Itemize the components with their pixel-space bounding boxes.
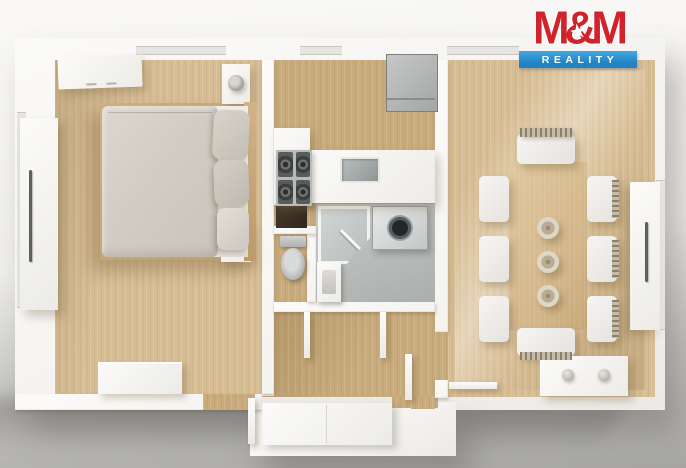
livingroom-door — [449, 382, 497, 389]
bathroom-sink — [317, 262, 341, 302]
wall-bath-bottom — [274, 302, 435, 312]
stove — [276, 150, 312, 206]
entry-door — [405, 354, 412, 400]
chair-back-slats — [612, 180, 619, 218]
chair-back-slats — [520, 352, 572, 360]
burner-icon — [296, 152, 311, 177]
pillow — [212, 109, 251, 161]
wall-wc-bath-divider — [307, 226, 316, 302]
window-livingroom-top — [447, 46, 519, 55]
sideboard-knob — [562, 369, 574, 381]
plate — [537, 217, 559, 239]
burner-icon — [296, 180, 311, 205]
wall-hall-livingroom-lower — [435, 380, 448, 398]
brand-logo: M&M ★ REALITY — [519, 8, 637, 68]
burner-icon — [278, 152, 293, 177]
lamp-icon — [228, 75, 244, 91]
wardrobe-right-handle — [645, 222, 648, 282]
chair-back-slats — [520, 128, 572, 137]
window-kitchen-top — [300, 46, 342, 55]
fridge-divider — [387, 98, 435, 100]
plate — [537, 285, 559, 307]
washing-machine — [372, 206, 428, 250]
entry-cabinet — [262, 403, 392, 445]
bathroom-sink-basin — [322, 270, 336, 294]
plate — [537, 251, 559, 273]
bedroom-door — [248, 398, 255, 444]
nightstand-top — [222, 64, 250, 104]
window-bedroom-top — [136, 46, 226, 55]
burner-icon — [278, 180, 293, 205]
shelf-handle-icon — [106, 82, 116, 84]
washer-door-icon — [387, 215, 413, 241]
kitchen-niche — [276, 203, 307, 228]
toilet-tank — [280, 236, 306, 247]
pillow-bolster — [217, 208, 249, 250]
bedroom-dresser — [98, 362, 182, 394]
sideboard — [540, 356, 628, 396]
bathroom-door — [380, 312, 386, 358]
doorway-livingroom — [435, 332, 448, 380]
sideboard-knob — [598, 369, 610, 381]
toilet-bowl — [281, 248, 305, 280]
dining-chair-left — [479, 236, 509, 282]
bedroom-shelf-topleft — [57, 55, 142, 90]
chair-back-slats — [612, 300, 619, 338]
brand-logo-title: M&M ★ — [533, 7, 623, 51]
wall-bedroom-hall — [262, 60, 274, 394]
dining-chair-left — [479, 176, 509, 222]
dining-chair-head-top — [517, 134, 575, 164]
shelf-handle-icon — [86, 83, 96, 85]
dining-chair-left — [479, 296, 509, 342]
pillow — [213, 159, 250, 206]
wardrobe-left — [20, 118, 58, 310]
bed-duvet — [102, 106, 218, 257]
fridge — [386, 54, 438, 112]
kitchen-sink — [340, 157, 380, 183]
wc-door — [304, 312, 310, 358]
wardrobe-left-handle — [29, 170, 32, 262]
bed-duvet-fold — [108, 112, 212, 113]
doorway-entry — [411, 396, 435, 409]
chair-back-slats — [612, 240, 619, 278]
floorplan-render: M&M ★ REALITY — [0, 0, 686, 468]
entry-cabinet-seam — [326, 405, 327, 443]
